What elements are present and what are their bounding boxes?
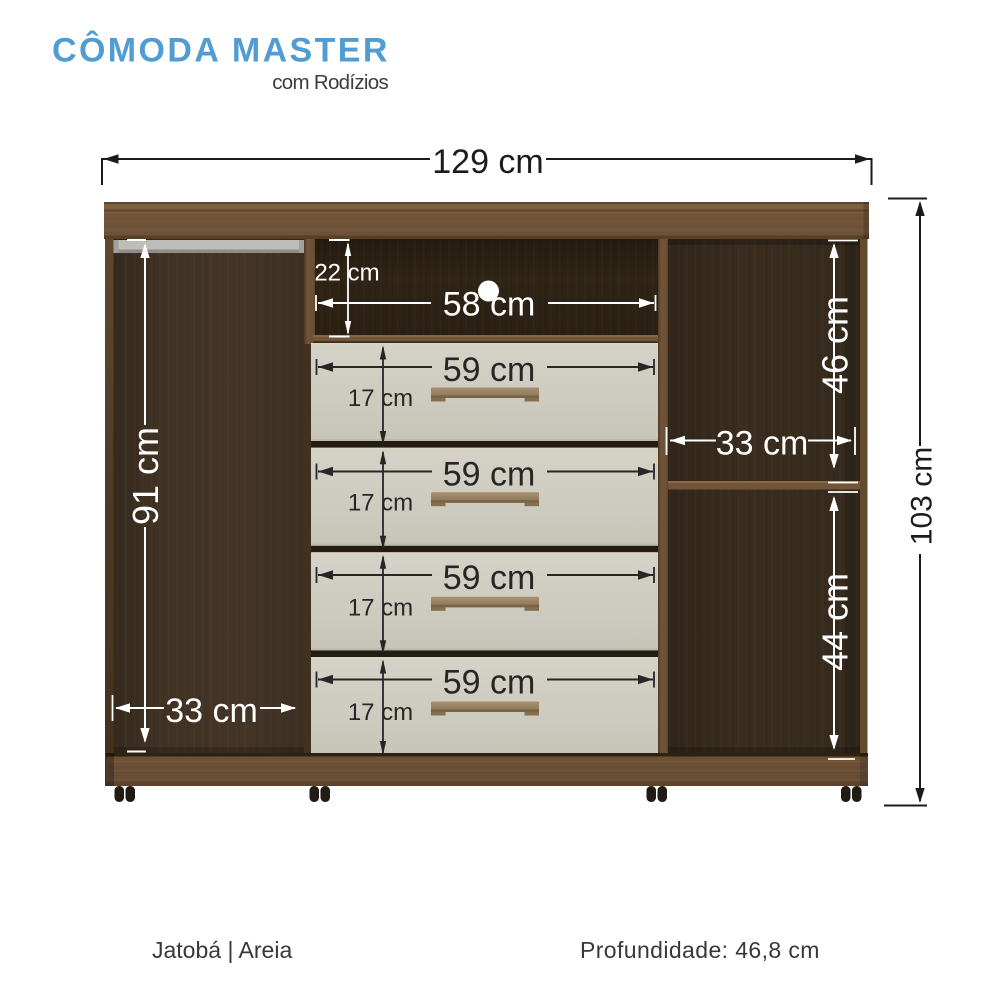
svg-text:91 cm: 91 cm [125,427,166,525]
svg-text:58 cm: 58 cm [443,286,536,324]
svg-text:22 cm: 22 cm [314,260,379,287]
svg-text:17 cm: 17 cm [348,699,413,726]
svg-text:CÔMODA MASTER: CÔMODA MASTER [52,31,390,70]
svg-text:Profundidade: 46,8 cm: Profundidade: 46,8 cm [580,937,820,963]
svg-text:com Rodízios: com Rodízios [272,71,388,94]
svg-text:129 cm: 129 cm [432,143,544,181]
svg-text:17 cm: 17 cm [348,490,413,517]
svg-text:103 cm: 103 cm [906,447,939,545]
svg-text:59 cm: 59 cm [443,456,536,494]
svg-text:17 cm: 17 cm [348,385,413,412]
svg-text:59 cm: 59 cm [443,351,536,389]
svg-text:17 cm: 17 cm [348,594,413,621]
svg-text:46 cm: 46 cm [815,296,856,394]
svg-text:33 cm: 33 cm [716,425,809,463]
svg-text:33 cm: 33 cm [165,692,258,730]
svg-text:Jatobá | Areia: Jatobá | Areia [152,937,292,963]
svg-text:59 cm: 59 cm [443,559,536,597]
svg-text:59 cm: 59 cm [443,664,536,702]
svg-text:44 cm: 44 cm [815,573,856,671]
